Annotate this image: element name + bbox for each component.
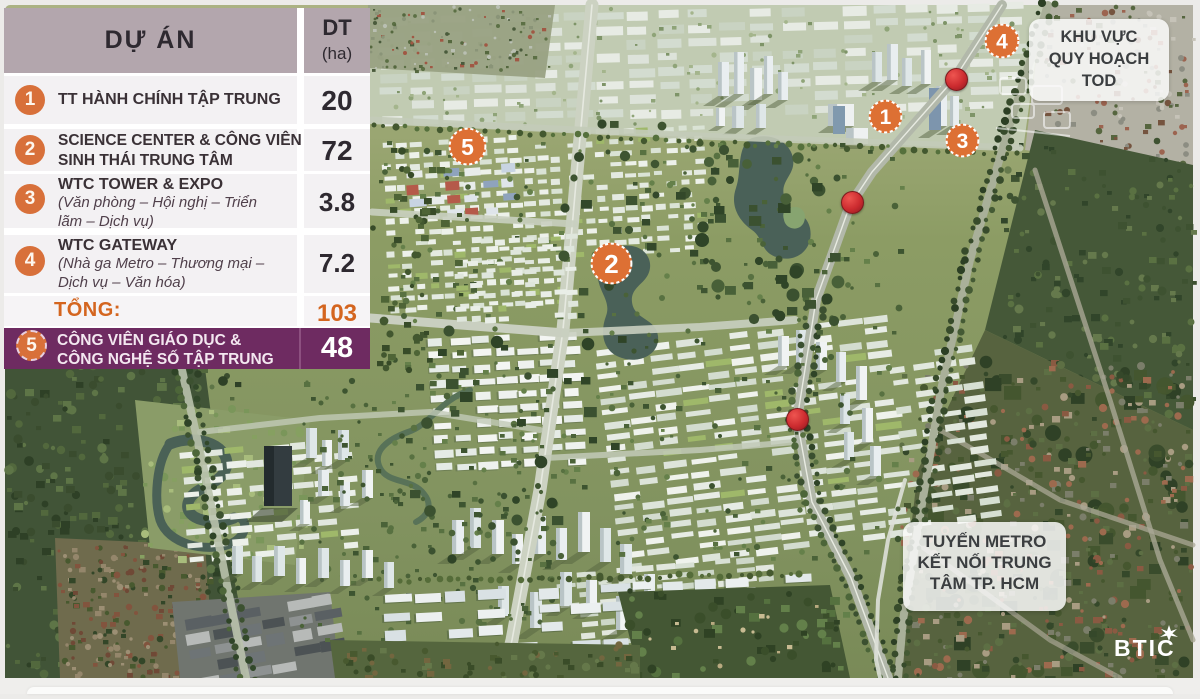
svg-text:BTIC: BTIC (1114, 635, 1176, 661)
svg-text:3: 3 (957, 130, 969, 153)
svg-text:5: 5 (461, 134, 474, 160)
svg-text:4: 4 (996, 31, 1008, 54)
svg-text:2: 2 (604, 249, 618, 279)
svg-text:1: 1 (880, 106, 892, 129)
